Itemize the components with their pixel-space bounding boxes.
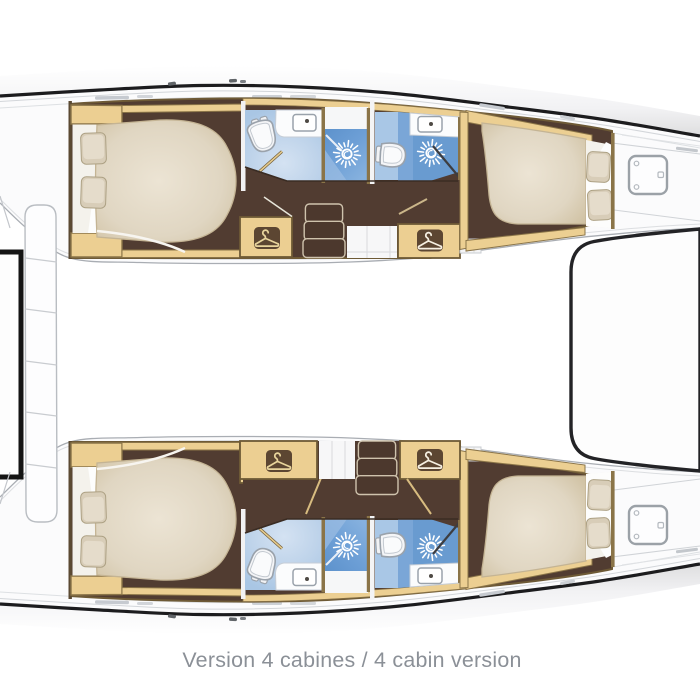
svg-text:Version 4 cabines / 4 cabin ve: Version 4 cabines / 4 cabin version: [182, 648, 521, 672]
